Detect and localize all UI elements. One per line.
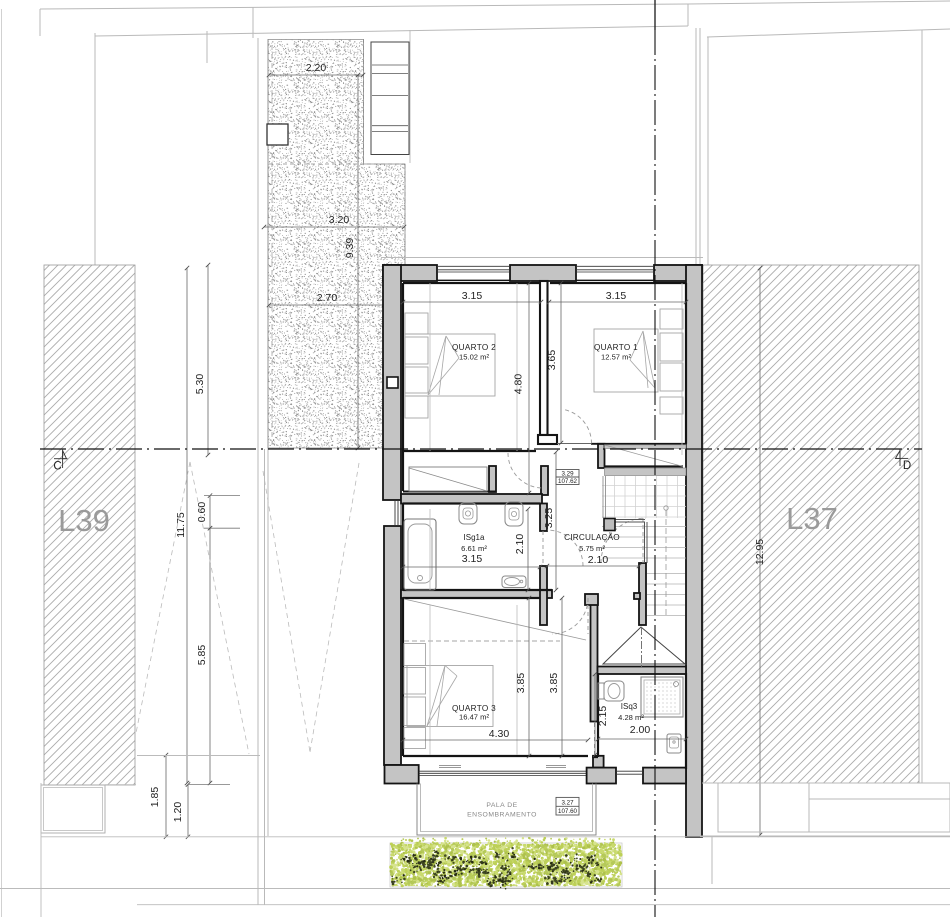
svg-text:3.20: 3.20 bbox=[329, 214, 350, 226]
svg-text:2.10: 2.10 bbox=[588, 554, 609, 566]
svg-text:QUARTO 2: QUARTO 2 bbox=[452, 343, 496, 352]
svg-text:3.15: 3.15 bbox=[606, 290, 627, 302]
svg-text:16.47 m²: 16.47 m² bbox=[459, 713, 489, 722]
svg-text:3.15: 3.15 bbox=[462, 290, 483, 302]
svg-text:4.30: 4.30 bbox=[489, 728, 510, 740]
svg-text:6.61 m²: 6.61 m² bbox=[461, 544, 487, 553]
svg-text:3.29: 3.29 bbox=[561, 470, 574, 477]
svg-text:3.65: 3.65 bbox=[546, 350, 558, 371]
svg-text:1.85: 1.85 bbox=[149, 787, 161, 808]
svg-text:PALA DE: PALA DE bbox=[486, 802, 517, 809]
svg-text:3.25: 3.25 bbox=[543, 508, 555, 529]
svg-text:D: D bbox=[903, 460, 911, 472]
svg-text:2.20: 2.20 bbox=[306, 62, 327, 74]
svg-text:3.85: 3.85 bbox=[548, 673, 560, 694]
svg-text:11.75: 11.75 bbox=[175, 512, 187, 538]
svg-text:L37: L37 bbox=[786, 501, 838, 536]
svg-text:107.62: 107.62 bbox=[558, 478, 577, 485]
svg-text:L39: L39 bbox=[58, 503, 110, 538]
svg-text:C: C bbox=[53, 461, 61, 473]
svg-text:ISq3: ISq3 bbox=[621, 702, 638, 711]
svg-text:15.02 m²: 15.02 m² bbox=[459, 353, 489, 362]
svg-text:5.85: 5.85 bbox=[196, 645, 208, 666]
svg-text:5.75 m²: 5.75 m² bbox=[579, 544, 605, 553]
svg-text:4.28 m²: 4.28 m² bbox=[618, 713, 644, 722]
svg-text:12.57 m²: 12.57 m² bbox=[601, 353, 631, 362]
svg-text:0.60: 0.60 bbox=[196, 502, 208, 523]
svg-text:2.15: 2.15 bbox=[597, 706, 609, 727]
svg-text:4.80: 4.80 bbox=[513, 374, 525, 395]
svg-text:5.30: 5.30 bbox=[194, 374, 206, 395]
svg-text:9.39: 9.39 bbox=[344, 238, 356, 259]
svg-text:ENSOMBRAMENTO: ENSOMBRAMENTO bbox=[467, 812, 537, 819]
svg-text:1.20: 1.20 bbox=[172, 802, 184, 823]
svg-text:12.95: 12.95 bbox=[754, 539, 766, 565]
svg-text:QUARTO 1: QUARTO 1 bbox=[594, 343, 638, 352]
svg-text:3.85: 3.85 bbox=[515, 673, 527, 694]
svg-text:3.27: 3.27 bbox=[561, 799, 574, 806]
svg-text:2.00: 2.00 bbox=[630, 724, 651, 736]
svg-text:2.10: 2.10 bbox=[514, 534, 526, 555]
svg-text:107.60: 107.60 bbox=[558, 808, 577, 815]
svg-text:2.70: 2.70 bbox=[317, 292, 338, 304]
svg-text:ISg1a: ISg1a bbox=[464, 533, 485, 542]
svg-text:3.15: 3.15 bbox=[462, 553, 483, 565]
svg-text:CIRCULAÇÃO: CIRCULAÇÃO bbox=[564, 532, 620, 542]
